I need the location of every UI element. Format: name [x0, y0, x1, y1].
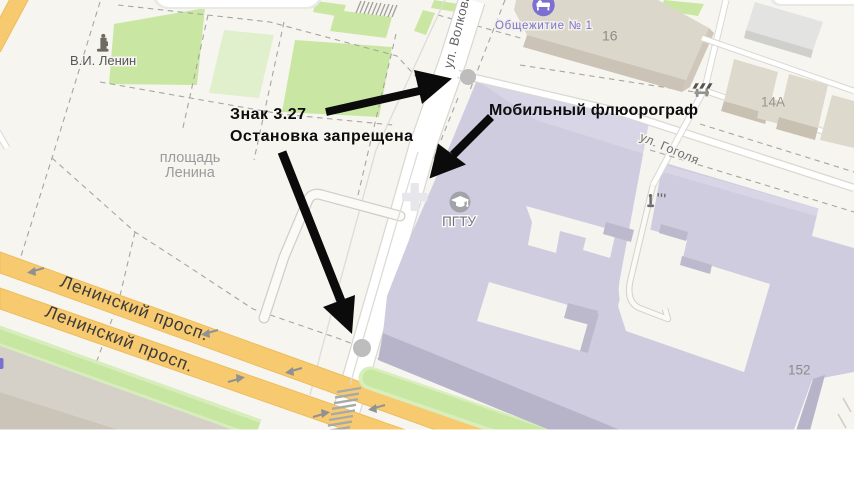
svg-text:152: 152 [788, 363, 811, 378]
svg-text:Ленина: Ленина [165, 165, 216, 181]
svg-text:В.И. Ленин: В.И. Ленин [70, 53, 136, 68]
svg-text:Мобильный флюорограф: Мобильный флюорограф [489, 102, 698, 119]
svg-text:14А: 14А [761, 95, 785, 110]
svg-text:Знак 3.27: Знак 3.27 [230, 106, 306, 123]
svg-text:Остановка запрещена: Остановка запрещена [230, 128, 413, 145]
svg-text:16: 16 [602, 28, 618, 44]
svg-text:ПГТУ: ПГТУ [442, 214, 476, 229]
svg-text:Общежитие № 1: Общежитие № 1 [495, 20, 592, 32]
svg-text:площадь: площадь [160, 150, 221, 166]
